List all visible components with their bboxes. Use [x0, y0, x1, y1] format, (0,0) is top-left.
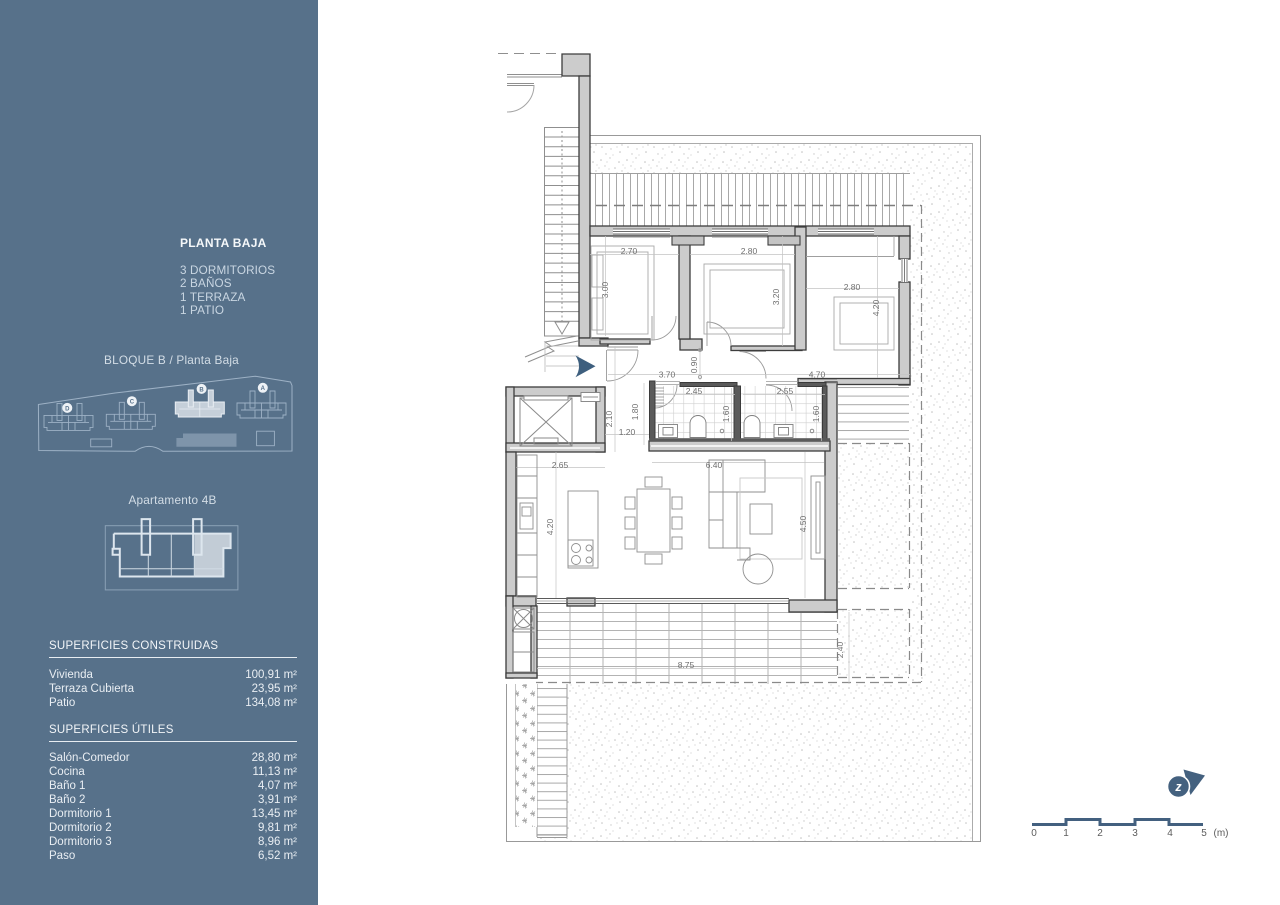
- svg-text:1.20: 1.20: [619, 427, 636, 437]
- svg-text:2.80: 2.80: [741, 246, 758, 256]
- svg-text:(m): (m): [1214, 828, 1229, 839]
- svg-text:1: 1: [1063, 828, 1069, 839]
- svg-text:1.80: 1.80: [630, 403, 640, 420]
- svg-text:2.55: 2.55: [777, 386, 794, 396]
- svg-text:z: z: [1174, 780, 1182, 794]
- svg-text:5: 5: [1201, 828, 1207, 839]
- svg-text:4: 4: [1167, 828, 1173, 839]
- svg-text:2.65: 2.65: [552, 460, 569, 470]
- svg-text:8.75: 8.75: [678, 660, 695, 670]
- svg-text:2: 2: [1097, 828, 1103, 839]
- svg-text:4.70: 4.70: [809, 370, 826, 380]
- svg-text:3.00: 3.00: [600, 281, 610, 298]
- svg-text:3.70: 3.70: [659, 370, 676, 380]
- svg-text:2.10: 2.10: [604, 410, 614, 427]
- svg-text:4.20: 4.20: [545, 518, 555, 535]
- svg-text:6.40: 6.40: [706, 460, 723, 470]
- svg-text:1.60: 1.60: [811, 405, 821, 422]
- svg-text:4.20: 4.20: [871, 299, 881, 316]
- svg-text:0.90: 0.90: [689, 356, 699, 373]
- svg-text:3.20: 3.20: [771, 288, 781, 305]
- svg-text:2.70: 2.70: [621, 246, 638, 256]
- svg-text:4.50: 4.50: [798, 515, 808, 532]
- svg-text:3: 3: [1132, 828, 1138, 839]
- svg-text:1.60: 1.60: [721, 405, 731, 422]
- svg-text:2.80: 2.80: [844, 282, 861, 292]
- svg-text:2.45: 2.45: [686, 386, 703, 396]
- svg-text:0: 0: [1031, 828, 1037, 839]
- svg-text:2.40: 2.40: [835, 641, 845, 658]
